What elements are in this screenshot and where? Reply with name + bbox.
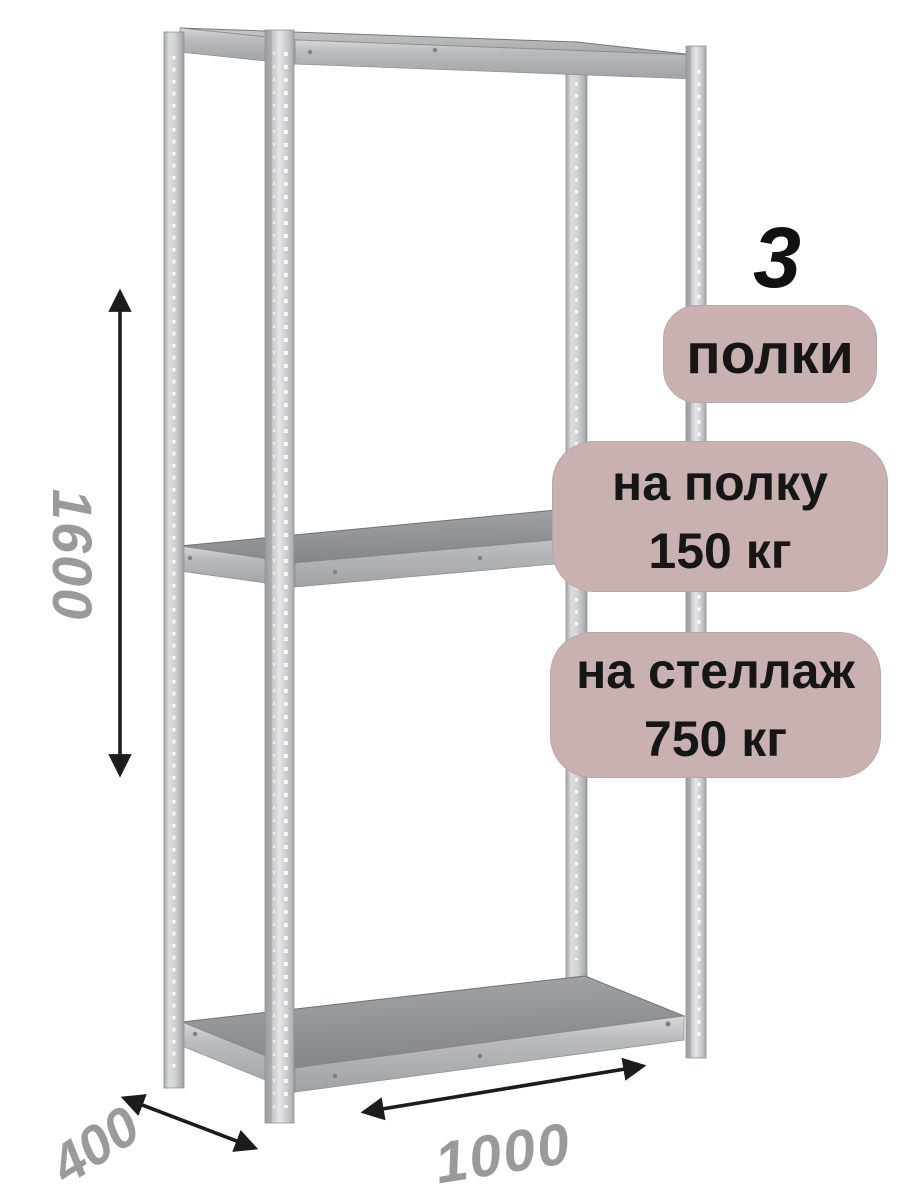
height-dimension-label: 1600 [41,492,105,618]
rack-post-back-left [164,32,184,1088]
product-card: 3 полки на полку 150 кг на стеллаж 750 к… [0,0,900,1200]
shelf-count-value: 3 [737,212,817,304]
per-shelf-load-badge: на полку 150 кг [552,441,888,592]
shelf-count-label: полки [686,321,854,387]
per-rack-load-label: на стеллаж [576,637,855,705]
top-shelf [180,28,695,79]
per-shelf-load-value: 150 кг [648,517,791,585]
shelf-rack-illustration [0,0,900,1200]
bottom-shelf [182,976,684,1092]
rack-post-front-left [265,30,294,1123]
shelf-count-badge: полки [663,305,877,403]
per-rack-load-badge: на стеллаж 750 кг [550,632,881,778]
per-shelf-load-label: на полку [612,449,828,517]
per-rack-load-value: 750 кг [644,705,787,773]
